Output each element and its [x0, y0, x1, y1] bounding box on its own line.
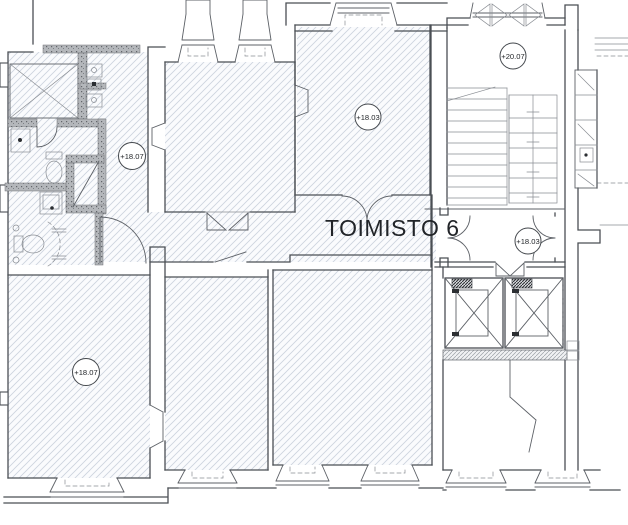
level-marker-label: +18.07 [74, 368, 97, 377]
stair-treads-left-flight [447, 87, 509, 205]
service-shaft-strip [575, 70, 597, 188]
level-marker: +18.03 [515, 228, 541, 254]
level-marker: +18.07 [119, 143, 146, 170]
level-marker: +20.07 [500, 43, 526, 69]
level-marker: +18.03 [355, 104, 381, 130]
stair-treads-right-flight [509, 95, 557, 203]
elevator-shafts [443, 267, 579, 470]
level-marker-label: +18.03 [356, 113, 379, 122]
level-marker: +18.07 [73, 359, 100, 386]
level-marker-label: +18.03 [516, 237, 539, 246]
floor-plan-page: +18.07 +18.03 +20.07 +18.03 +18.07 TOIMI… [0, 0, 628, 525]
room-title: TOIMISTO 6 [325, 215, 460, 241]
level-marker-label: +20.07 [501, 52, 524, 61]
hatched-floor-areas [8, 27, 436, 478]
level-marker-label: +18.07 [120, 152, 143, 161]
floor-plan-canvas: +18.07 +18.03 +20.07 +18.03 +18.07 TOIMI… [0, 0, 628, 525]
stairwell [425, 28, 565, 209]
